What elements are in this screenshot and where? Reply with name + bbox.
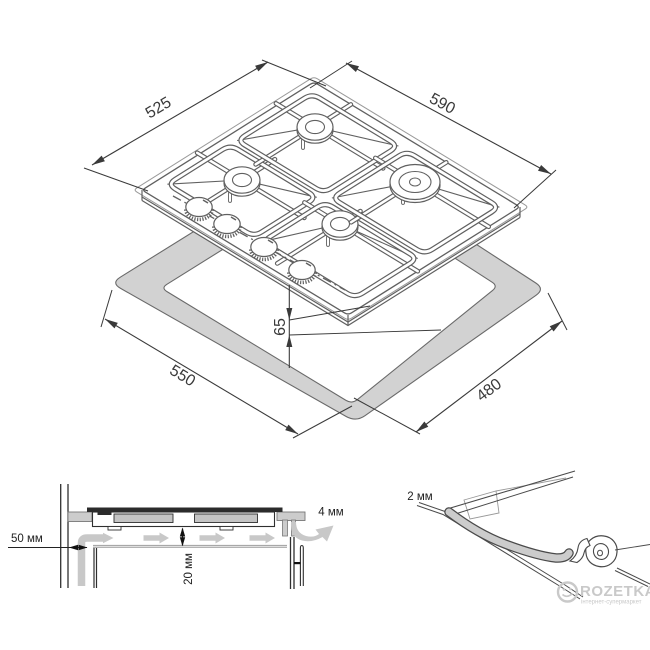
svg-text:ROZETKA: ROZETKA xyxy=(580,583,650,600)
svg-text:20 мм: 20 мм xyxy=(183,553,195,585)
svg-text:4 мм: 4 мм xyxy=(318,507,343,519)
svg-text:2 мм: 2 мм xyxy=(407,491,432,503)
svg-text:50 мм: 50 мм xyxy=(11,533,43,545)
svg-text:65: 65 xyxy=(272,318,289,336)
svg-text:інтернет-супермаркет: інтернет-супермаркет xyxy=(581,600,642,606)
